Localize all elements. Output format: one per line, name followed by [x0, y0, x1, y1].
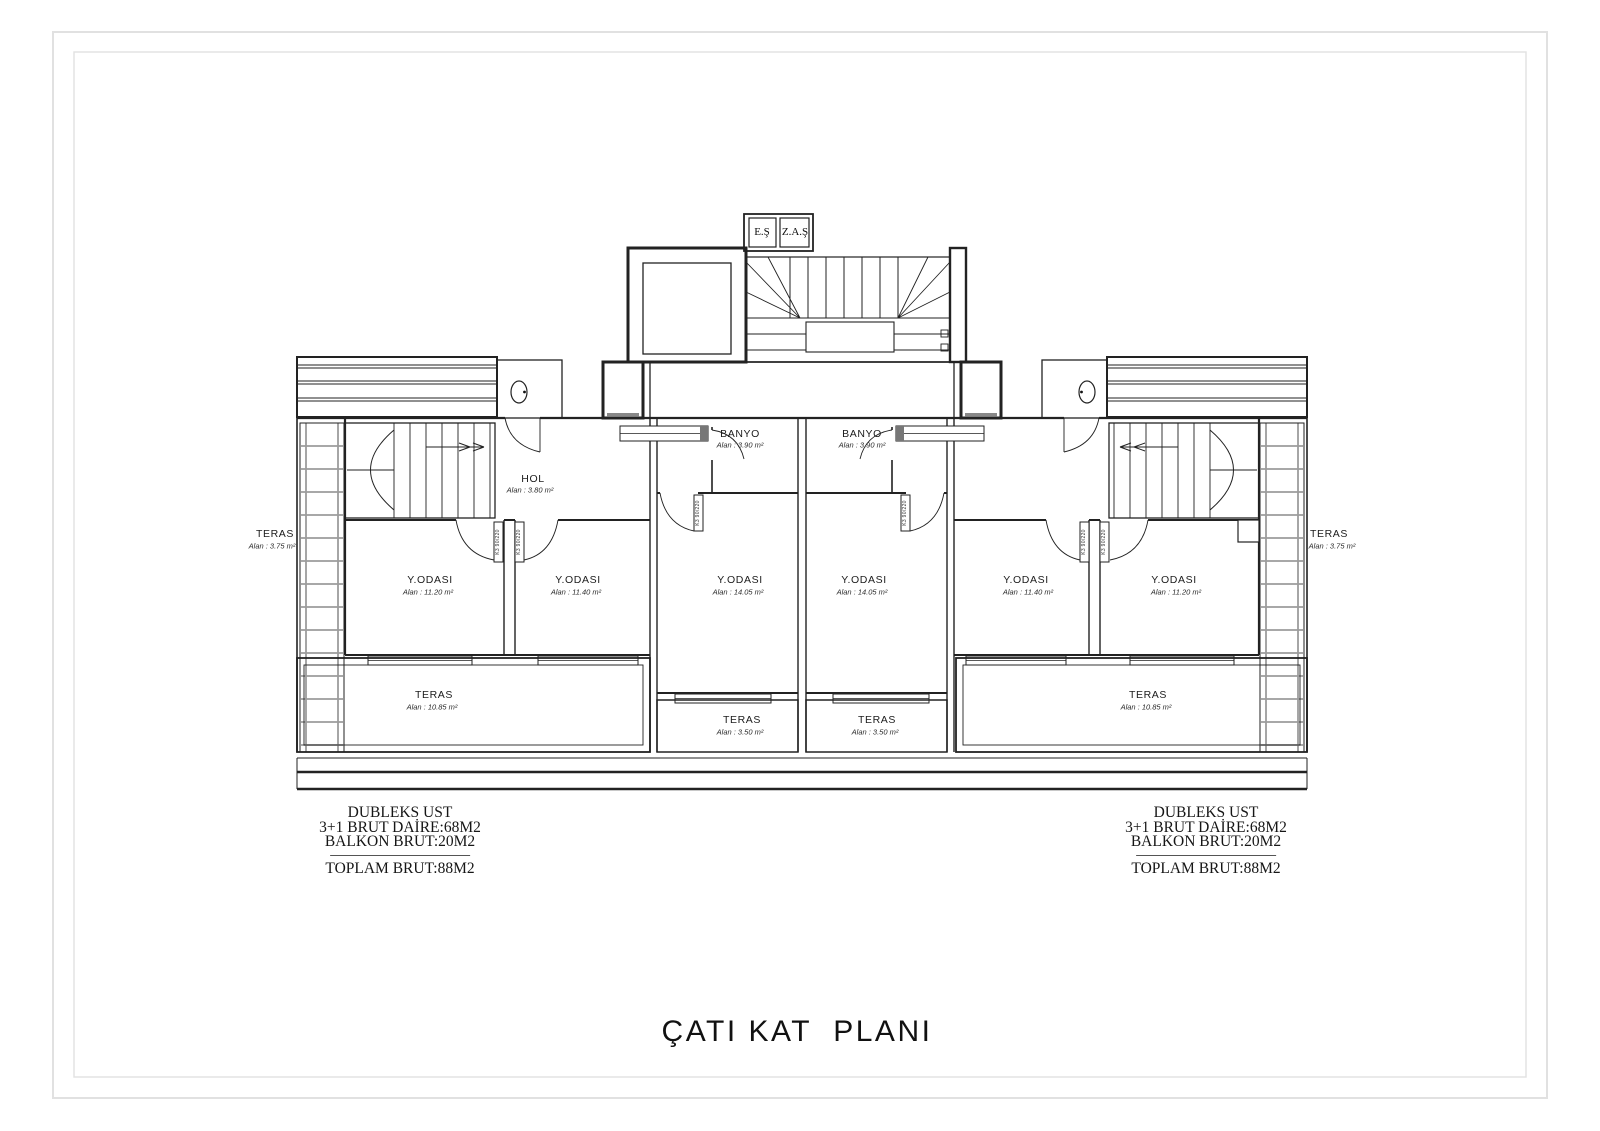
unit-summary-right: DUBLEKS UST 3+1 BRUT DAİRE:68M2 BALKON B…	[1125, 806, 1287, 876]
room-area-teras-center-left: Alan : 3.50 m²	[717, 728, 764, 737]
room-label-banyo-right: BANYO	[842, 428, 882, 440]
room-area-banyo-left: Alan : 3.90 m²	[717, 441, 764, 450]
room-label-bedroom-4: Y.ODASI	[841, 574, 886, 586]
door-swings	[456, 418, 1148, 562]
door-size-label: K3 90/220	[1101, 529, 1107, 555]
shaft-label-right: Z.A.Ş	[782, 226, 808, 238]
bottom-eave-band	[297, 758, 1307, 789]
room-label-teras-side-left: TERAS	[256, 528, 294, 540]
summary-total: TOPLAM BRUT:88M2	[1125, 862, 1287, 877]
room-label-bedroom-2: Y.ODASI	[555, 574, 600, 586]
door-size-label: K3 90/220	[516, 529, 522, 555]
terrace-railing-left	[300, 423, 344, 752]
room-label-teras-center-right: TERAS	[858, 714, 896, 726]
room-label-hol: HOL	[521, 473, 544, 485]
summary-total: TOPLAM BRUT:88M2	[319, 862, 481, 877]
roof-hatch-band-right	[1107, 357, 1307, 417]
summary-divider	[1136, 855, 1276, 856]
room-label-bedroom-5: Y.ODASI	[1003, 574, 1048, 586]
door-size-label: K3 90/220	[902, 500, 908, 526]
room-area-teras-bottom-left: Alan : 10.85 m²	[407, 703, 458, 712]
summary-line: BALKON BRUT:20M2	[1125, 835, 1287, 850]
room-area-teras-side-right: Alan : 3.75 m²	[1309, 542, 1356, 551]
staircase-right	[1109, 423, 1259, 518]
room-area-bedroom-3: Alan : 14.05 m²	[713, 588, 764, 597]
floor-plan-drawing	[0, 0, 1600, 1131]
summary-divider	[330, 855, 470, 856]
closet-niche	[1238, 520, 1259, 542]
room-area-teras-bottom-right: Alan : 10.85 m²	[1121, 703, 1172, 712]
room-area-bedroom-4: Alan : 14.05 m²	[837, 588, 888, 597]
shaft-label-left: E.Ş	[754, 226, 770, 238]
door-size-label: K3 90/220	[495, 529, 501, 555]
door-size-label: K3 90/220	[1081, 529, 1087, 555]
room-label-teras-center-left: TERAS	[723, 714, 761, 726]
roof-hatch-band-left	[297, 357, 497, 417]
wc-cabin-left	[497, 360, 562, 418]
stair-direction-arrow	[426, 443, 484, 451]
elevator-door-left	[603, 362, 643, 419]
door-size-label: K3 90/220	[695, 500, 701, 526]
room-label-teras-side-right: TERAS	[1310, 528, 1348, 540]
room-label-bedroom-1: Y.ODASI	[407, 574, 452, 586]
wc-cabin-right	[1042, 360, 1107, 418]
staircase-left	[345, 423, 495, 518]
room-label-banyo-left: BANYO	[720, 428, 760, 440]
room-label-bedroom-3: Y.ODASI	[717, 574, 762, 586]
elevator-shaft	[628, 248, 746, 362]
room-area-bedroom-5: Alan : 11.40 m²	[1003, 588, 1053, 597]
room-area-teras-center-right: Alan : 3.50 m²	[852, 728, 899, 737]
room-area-bedroom-2: Alan : 11.40 m²	[551, 588, 601, 597]
room-area-teras-side-left: Alan : 3.75 m²	[249, 542, 296, 551]
room-area-banyo-right: Alan : 3.90 m²	[839, 441, 886, 450]
drawing-title: ÇATI KAT PLANI	[662, 1015, 933, 1049]
stair-direction-arrow	[1120, 443, 1178, 451]
windows	[368, 426, 1234, 703]
stairwell-core	[628, 248, 966, 418]
room-area-hol: Alan : 3.80 m²	[507, 486, 554, 495]
room-area-bedroom-6: Alan : 11.20 m²	[1151, 588, 1201, 597]
room-area-bedroom-1: Alan : 11.20 m²	[403, 588, 453, 597]
room-label-bedroom-6: Y.ODASI	[1151, 574, 1196, 586]
summary-line: BALKON BRUT:20M2	[319, 835, 481, 850]
terrace-railing-right	[1260, 423, 1304, 752]
room-label-teras-bottom-right: TERAS	[1129, 689, 1167, 701]
sheet-border	[53, 32, 1547, 1098]
drawing-sheet: E.Ş Z.A.Ş HOL Alan : 3.80 m² BANYO Alan …	[0, 0, 1600, 1131]
unit-summary-left: DUBLEKS UST 3+1 BRUT DAİRE:68M2 BALKON B…	[319, 806, 481, 876]
room-label-teras-bottom-left: TERAS	[415, 689, 453, 701]
elevator-door-right	[961, 362, 1001, 419]
